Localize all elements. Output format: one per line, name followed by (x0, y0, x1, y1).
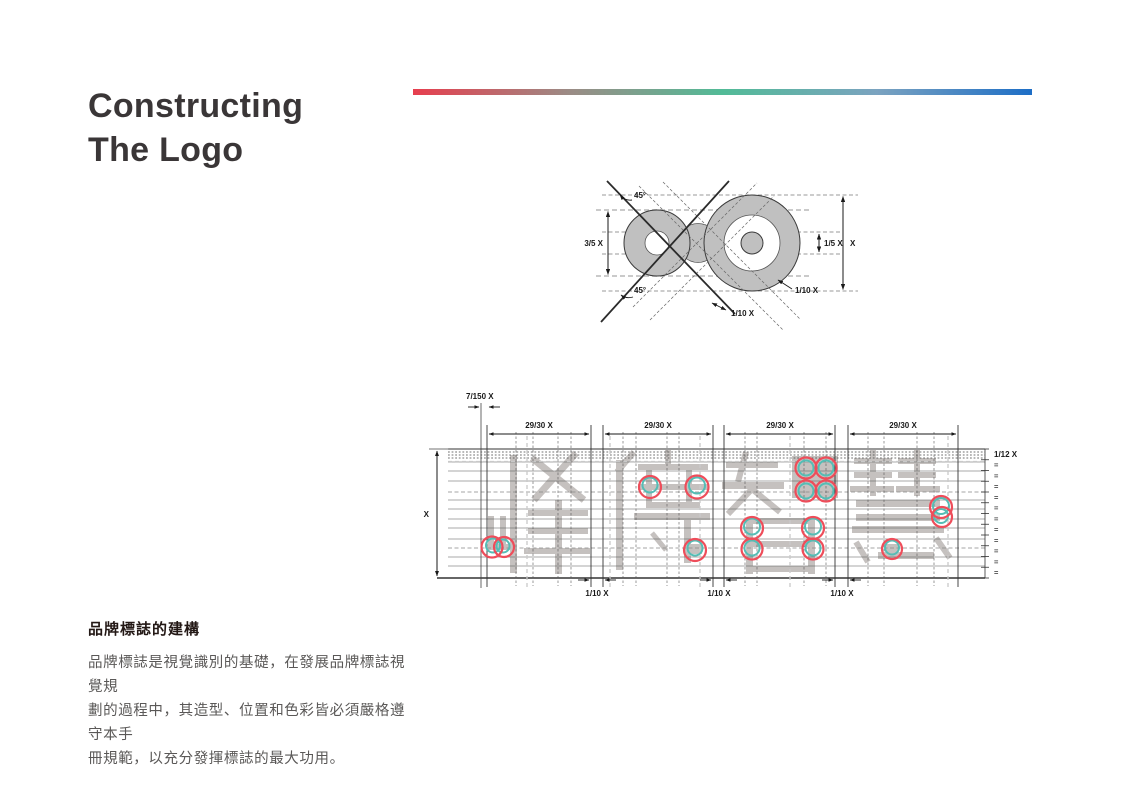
svg-text:1/10 X: 1/10 X (707, 589, 731, 598)
svg-text:1/10 X: 1/10 X (795, 286, 819, 295)
dimension-stroke-width: 7/150 X (466, 392, 500, 588)
description-heading: 品牌標誌的建構 (88, 618, 418, 639)
page-title-line1: Constructing (88, 84, 303, 128)
svg-text:1/5 X: 1/5 X (824, 239, 843, 248)
svg-text:29/30 X: 29/30 X (644, 421, 672, 430)
svg-text:=: = (994, 504, 999, 513)
description-line: 劃的過程中，其造型、位置和色彩皆必須嚴格遵守本手 (88, 699, 418, 747)
svg-text:=: = (994, 525, 999, 534)
svg-text:=: = (994, 514, 999, 523)
dimension-char-gaps: 1/10 X 1/10 X 1/10 X (578, 580, 861, 598)
dimension-diagonal-gap: 1/10 X (712, 303, 755, 318)
description-block: 品牌標誌的建構 品牌標誌是視覺識別的基礎，在發展品牌標誌視覺規 劃的過程中，其造… (88, 618, 418, 771)
dimension-row-units: 1/12 X = = = = = = = = = = = (981, 449, 1018, 578)
dimension-grid-total-height: X (424, 449, 449, 576)
dimension-total-height: X (843, 197, 856, 290)
svg-text:1/12 X: 1/12 X (994, 450, 1018, 459)
logo-construction-diagram: 3/5 X 1/5 X X 45° 45° 1/10 X 1/10 X (570, 160, 890, 330)
svg-text:45°: 45° (634, 286, 646, 295)
svg-text:=: = (994, 568, 999, 577)
svg-text:=: = (994, 536, 999, 545)
dimension-center-dot: 1/5 X (819, 234, 843, 252)
dimension-char-widths: 29/30 X 29/30 X 29/30 X 29/30 X (489, 421, 956, 434)
svg-text:29/30 X: 29/30 X (889, 421, 917, 430)
svg-text:X: X (424, 510, 430, 519)
svg-text:=: = (994, 493, 999, 502)
svg-text:X: X (850, 239, 856, 248)
brand-guideline-page: { "page": { "title_line1": "Constructing… (0, 0, 1123, 794)
description-line: 品牌標誌是視覺識別的基礎，在發展品牌標誌視覺規 (88, 651, 418, 699)
svg-text:29/30 X: 29/30 X (766, 421, 794, 430)
logotype-glyphs (488, 450, 950, 574)
dimension-angle-top: 45° (620, 191, 646, 200)
gradient-rule-bar (413, 89, 1032, 95)
description-line: 冊規範，以充分發揮標誌的最大功用。 (88, 747, 418, 771)
svg-text:=: = (994, 557, 999, 566)
dimension-stroke-offset: 1/10 X (778, 280, 819, 295)
svg-text:1/10 X: 1/10 X (830, 589, 854, 598)
svg-text:=: = (994, 482, 999, 491)
svg-text:=: = (994, 547, 999, 556)
svg-text:29/30 X: 29/30 X (525, 421, 553, 430)
page-title: Constructing The Logo (88, 84, 303, 172)
page-title-line2: The Logo (88, 128, 303, 172)
logotype-grid-diagram: 7/150 X 29/30 X 29/30 X 29/30 X 29/30 X … (420, 380, 1123, 605)
svg-text:1/10 X: 1/10 X (731, 309, 755, 318)
svg-text:=: = (994, 461, 999, 470)
svg-text:7/150 X: 7/150 X (466, 392, 494, 401)
svg-text:3/5 X: 3/5 X (584, 239, 603, 248)
svg-text:1/10 X: 1/10 X (585, 589, 609, 598)
svg-text:45°: 45° (634, 191, 646, 200)
dimension-small-circle-height: 3/5 X (584, 212, 608, 275)
svg-text:=: = (994, 471, 999, 480)
